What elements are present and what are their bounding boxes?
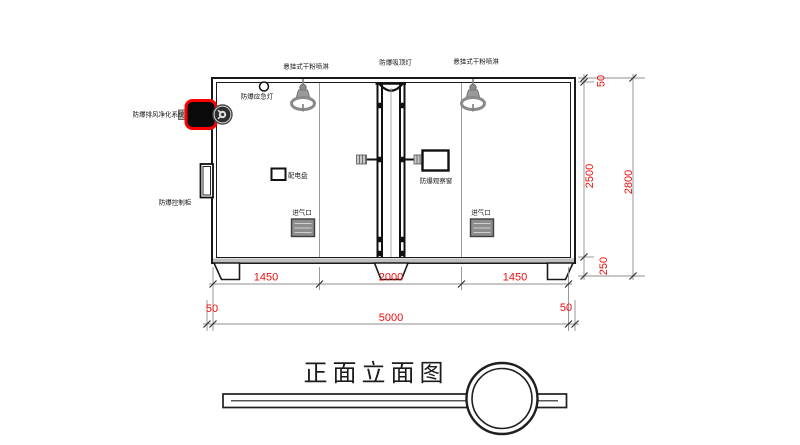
control-cabinet [201, 164, 214, 198]
dim-bottom-center: 2000 [379, 272, 403, 284]
label-sprinkler-right: 悬挂式干粉喷淋 [453, 57, 499, 66]
distribution-panel [272, 169, 286, 181]
observation-window [423, 151, 449, 171]
label-air-inlet-left: 进气口 [292, 208, 312, 217]
exhaust-unit-body [186, 101, 216, 129]
air-inlet-left-vent [292, 219, 315, 237]
dim-height-main: 2500 [584, 164, 596, 188]
label-air-inlet-right: 进气口 [471, 208, 491, 217]
container-box [212, 78, 575, 263]
dim-height-top-offset: 50 [596, 75, 608, 87]
foot-left [214, 263, 240, 280]
foot-right [548, 263, 574, 280]
container-outer-wall [212, 78, 575, 263]
label-observation-window: 防爆观察窗 [420, 176, 453, 185]
section-bubble-outer [467, 363, 538, 434]
dim-left-offset: 50 [206, 303, 218, 315]
dim-right-offset: 50 [560, 302, 572, 314]
label-distribution-panel: 配电盘 [288, 171, 308, 180]
label-ceiling-light: 防爆吸顶灯 [379, 58, 412, 67]
drawing-title: 正面立面图 [304, 359, 449, 387]
label-sprinkler-left: 悬挂式干粉喷淋 [283, 62, 329, 71]
exhaust-purification-unit [179, 101, 233, 129]
label-emergency-light: 防爆应急灯 [241, 92, 274, 101]
drawing-canvas: 1450 2000 1450 50 5000 50 50 2500 250 28… [0, 0, 800, 445]
emergency-light-icon [260, 82, 269, 91]
label-exhaust-system: 防爆排风净化系统 [133, 110, 186, 119]
container-floor-band [213, 259, 574, 263]
dim-total-width: 5000 [379, 312, 403, 324]
dim-bottom-left: 1450 [254, 272, 278, 284]
dim-height-base: 250 [598, 257, 610, 275]
dim-height-total: 2800 [623, 170, 635, 194]
air-inlet-right-vent [471, 219, 494, 237]
label-control-cabinet: 防爆控制柜 [159, 198, 192, 207]
elevation-drawing: 1450 2000 1450 50 5000 50 50 2500 250 28… [0, 0, 800, 445]
dim-bottom-right: 1450 [503, 272, 527, 284]
